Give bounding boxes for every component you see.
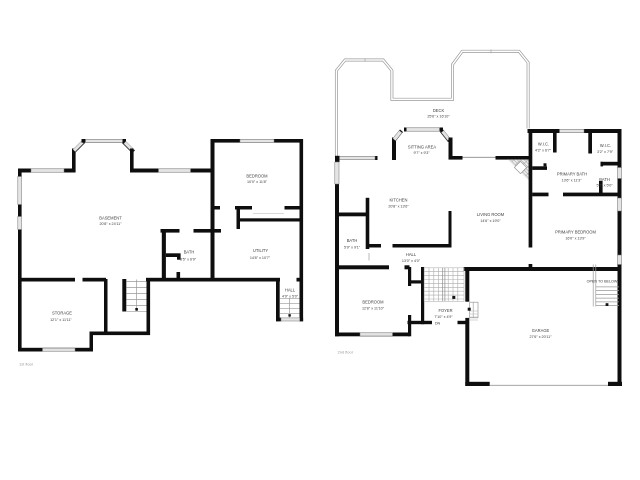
svg-text:GARAGE: GARAGE — [532, 328, 550, 333]
svg-text:8'5" x 6'9": 8'5" x 6'9" — [180, 257, 197, 261]
svg-text:13'0" x 4'0": 13'0" x 4'0" — [402, 259, 421, 263]
svg-text:FOYER: FOYER — [438, 308, 452, 313]
svg-text:14'8" x 10'7": 14'8" x 10'7" — [250, 256, 271, 260]
svg-text:BATH: BATH — [184, 250, 195, 255]
svg-text:HALL: HALL — [285, 288, 296, 293]
svg-text:2nd floor: 2nd floor — [338, 350, 354, 355]
svg-text:27'6" x 20'11": 27'6" x 20'11" — [530, 335, 553, 339]
svg-text:BATH: BATH — [599, 177, 610, 182]
svg-text:PRIMARY BATH: PRIMARY BATH — [557, 172, 587, 177]
svg-text:STORAGE: STORAGE — [52, 311, 72, 316]
svg-text:SITTING AREA: SITTING AREA — [408, 144, 436, 149]
svg-text:7'10" x 4'9": 7'10" x 4'9" — [434, 315, 453, 319]
svg-text:3'2" x 7'9": 3'2" x 7'9" — [597, 150, 614, 154]
svg-text:1st floor: 1st floor — [19, 362, 34, 367]
svg-text:25'6" x 16'10": 25'6" x 16'10" — [427, 114, 450, 118]
svg-text:13'6" x 11'3": 13'6" x 11'3" — [562, 179, 583, 183]
svg-text:HALL: HALL — [406, 252, 417, 257]
svg-text:BATH: BATH — [347, 238, 358, 243]
svg-text:BASEMENT: BASEMENT — [99, 216, 122, 221]
svg-text:W.I.C.: W.I.C. — [600, 143, 611, 148]
svg-text:4'2" x 6'7": 4'2" x 6'7" — [535, 149, 552, 153]
svg-text:20'8" x 13'6": 20'8" x 13'6" — [388, 204, 409, 208]
svg-text:OPEN TO BELOW: OPEN TO BELOW — [587, 279, 618, 283]
svg-text:16'0" x 13'9": 16'0" x 13'9" — [565, 237, 586, 241]
svg-text:5'9" x 9'1": 5'9" x 9'1" — [344, 246, 361, 250]
svg-text:12'8" x 11'10": 12'8" x 11'10" — [362, 307, 385, 311]
svg-text:PRIMARY BEDROOM: PRIMARY BEDROOM — [555, 229, 596, 234]
svg-text:20'8" x 24'11": 20'8" x 24'11" — [100, 222, 123, 226]
svg-text:14'6" x 19'0": 14'6" x 19'0" — [480, 219, 501, 223]
svg-text:DN: DN — [435, 322, 441, 326]
svg-text:12'1" x 11'11": 12'1" x 11'11" — [50, 318, 72, 322]
svg-text:LIVING ROOM: LIVING ROOM — [477, 212, 505, 217]
svg-text:UTILITY: UTILITY — [253, 248, 269, 253]
svg-text:9'7" x 9'3": 9'7" x 9'3" — [413, 151, 430, 155]
svg-text:DECK: DECK — [433, 108, 445, 113]
svg-text:BEDROOM: BEDROOM — [362, 299, 384, 304]
svg-text:KITCHEN: KITCHEN — [390, 197, 408, 202]
svg-text:5'5" x 5'0": 5'5" x 5'0" — [596, 184, 613, 188]
svg-text:4'9" x 5'0": 4'9" x 5'0" — [282, 294, 299, 298]
svg-text:BEDROOM: BEDROOM — [246, 174, 268, 179]
svg-text:W.I.C.: W.I.C. — [538, 142, 549, 147]
svg-text:10'0" x 11'8": 10'0" x 11'8" — [247, 180, 268, 184]
